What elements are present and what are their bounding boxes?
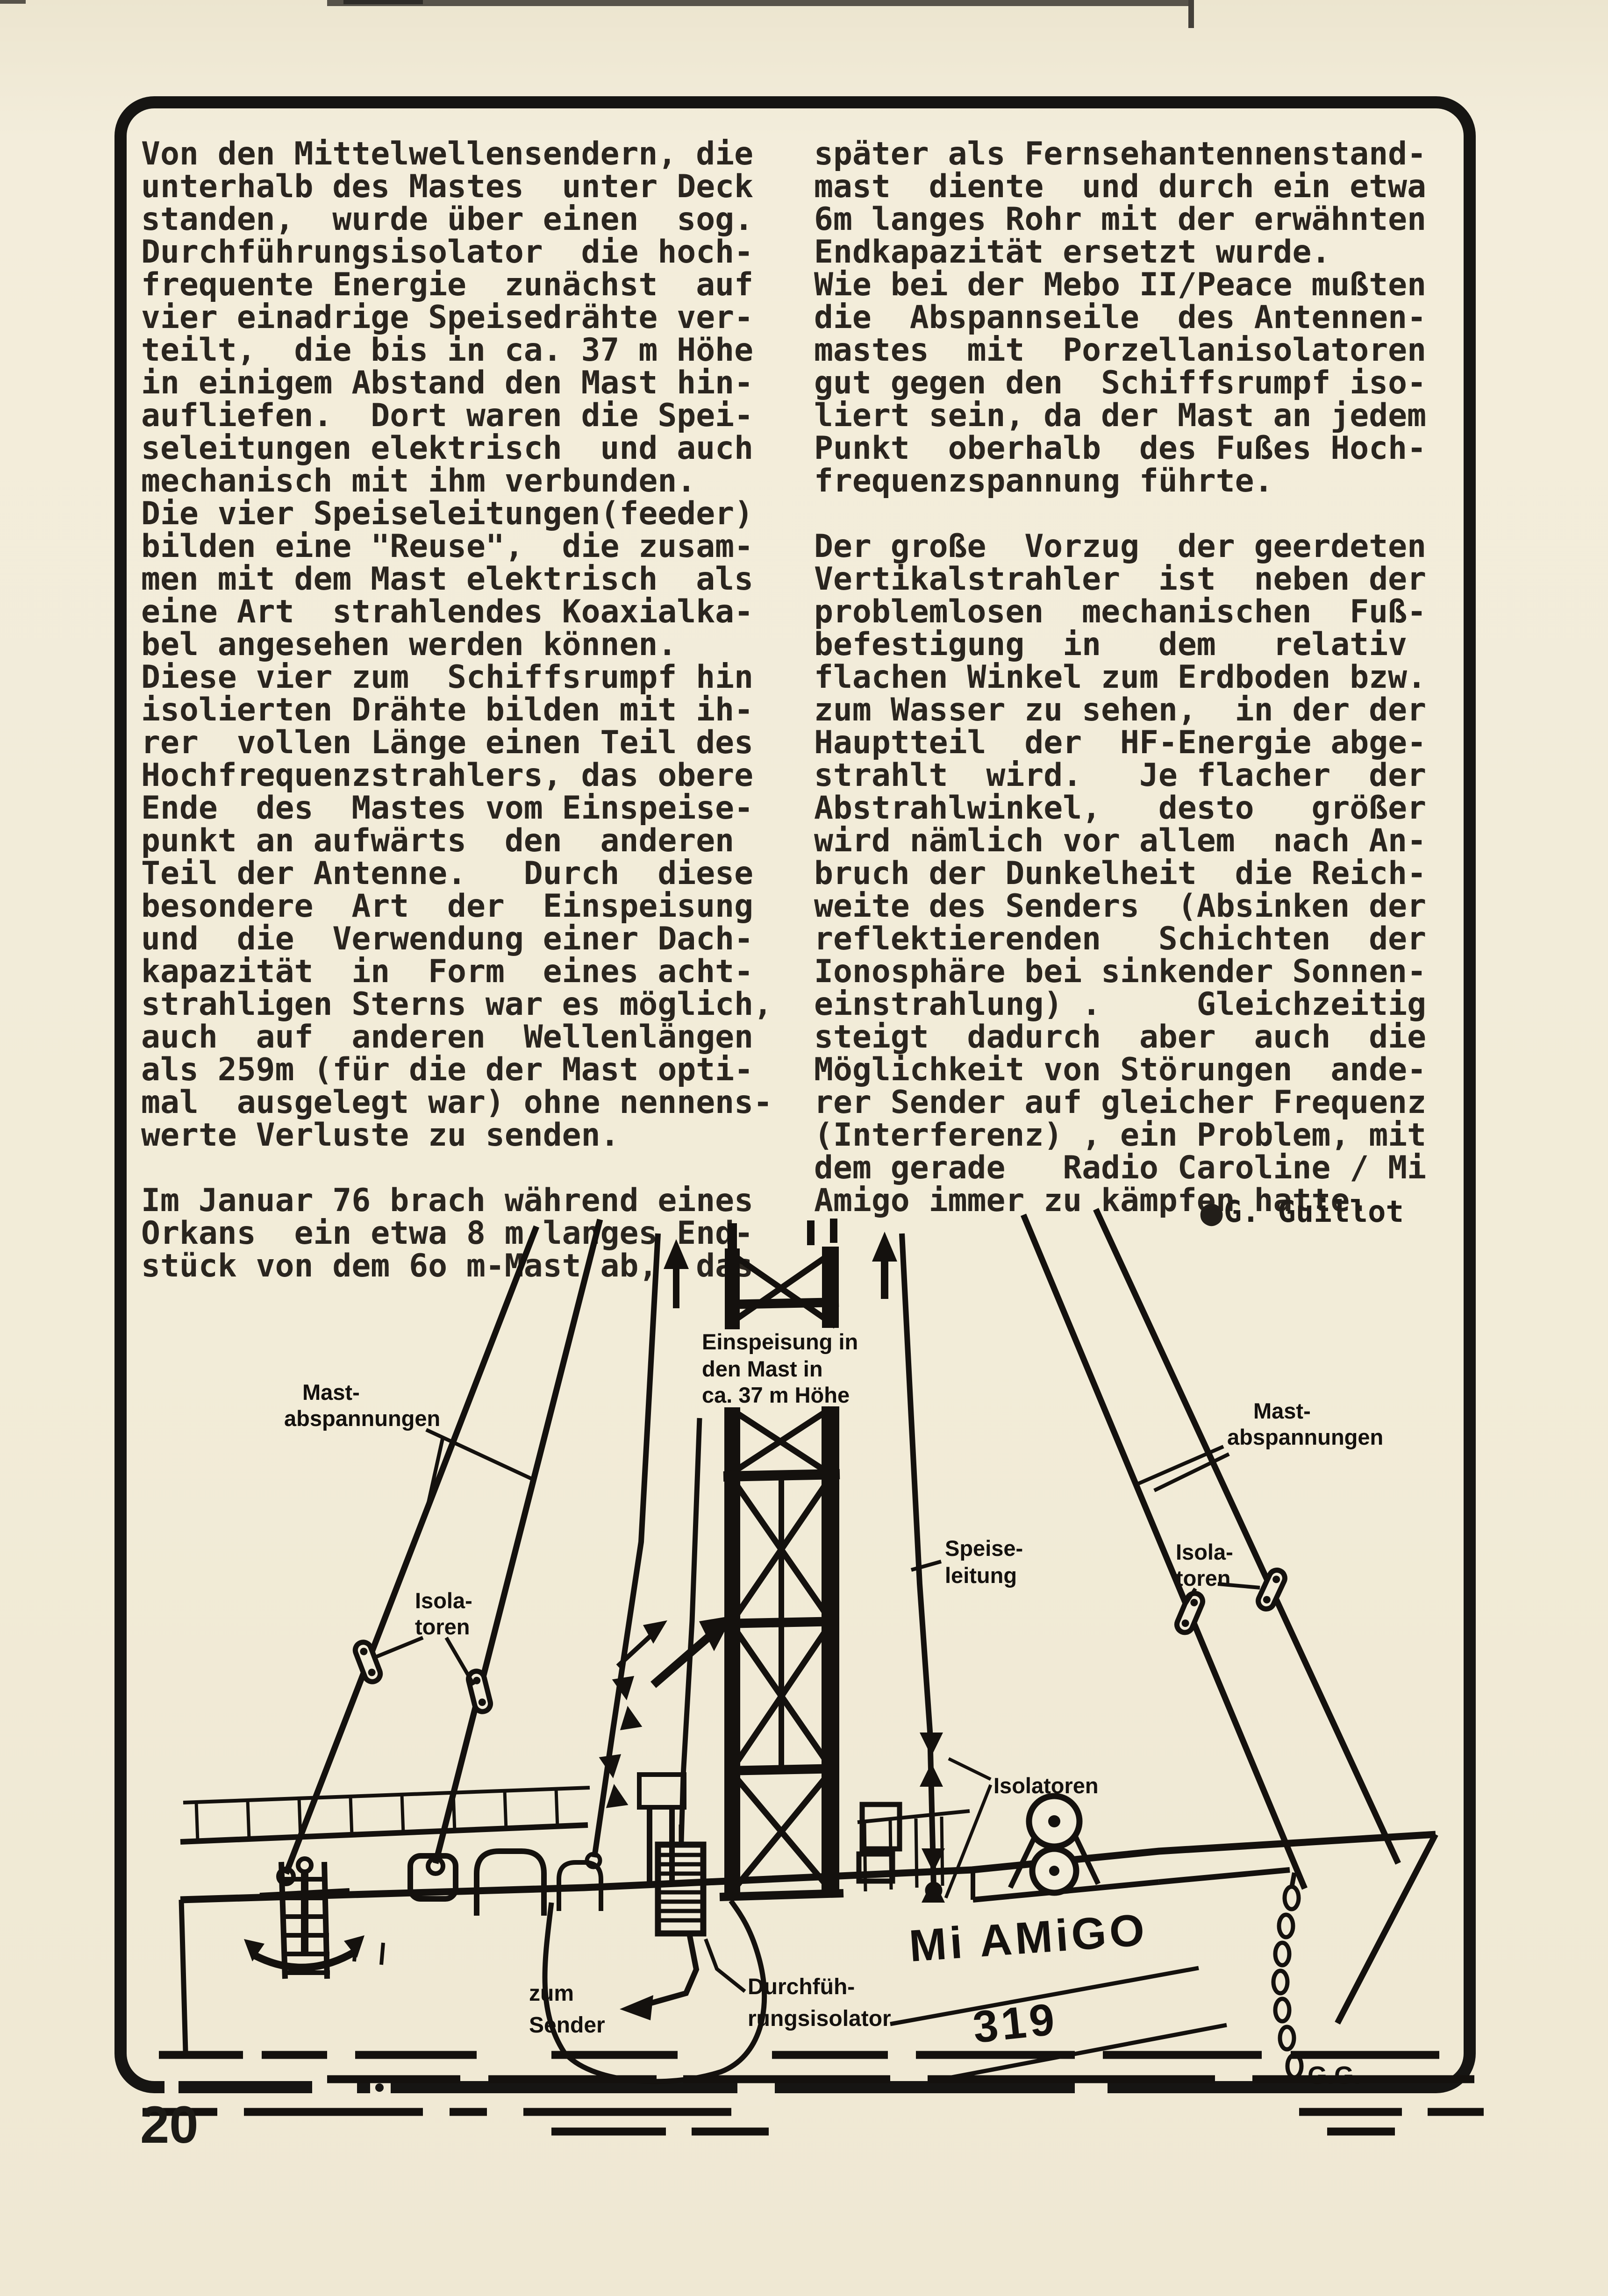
diagram-canvas: Einspeisung in den Mast in ca. 37 m Höhe…: [0, 0, 1608, 2296]
label-einspeisung: ca. 37 m Höhe: [702, 1383, 850, 1407]
label-einspeisung: den Mast in: [702, 1356, 823, 1381]
label-speiseleitung: leitung: [945, 1563, 1017, 1588]
ship-hull: [180, 1775, 1436, 2080]
label-mastabspannungen-right: Mast-: [1253, 1398, 1311, 1423]
antenna-mast: [720, 1219, 843, 1897]
ship-name-handwritten: Mi AMiGO: [908, 1905, 1149, 1971]
insulator-icon: [353, 1640, 382, 1684]
artist-initials: G.G.: [1308, 2061, 1361, 2089]
label-mastabspannungen-left: Mast-: [302, 1380, 360, 1405]
label-isolatoren-left: Isola-: [415, 1588, 472, 1613]
label-durchfuehrungsisolator: rungsisolator: [748, 2006, 891, 2031]
ship-number-handwritten: 319: [971, 1994, 1060, 2053]
anchor-icon: [244, 1859, 364, 1979]
label-isolatoren-left: toren: [415, 1614, 470, 1639]
page-number: 20: [140, 2099, 199, 2151]
insulator-icon: [1256, 1568, 1287, 1611]
label-zum-sender: zum: [529, 1981, 574, 2006]
label-isolatoren-right: Isola-: [1176, 1540, 1233, 1564]
label-zum-sender: Sender: [529, 2013, 605, 2038]
label-einspeisung: Einspeisung in: [702, 1329, 858, 1354]
label-isolatoren-right: toren: [1176, 1566, 1231, 1590]
scanned-magazine-page: Von den Mittelwellensendern, dieunterhal…: [0, 0, 1608, 2296]
label-isolatoren-center: Isolatoren: [993, 1773, 1099, 1798]
label-mastabspannungen-right: abspannungen: [1227, 1425, 1383, 1449]
anchor-chain: [1273, 1873, 1301, 2077]
label-speiseleitung: Speise-: [945, 1536, 1023, 1561]
label-mastabspannungen-left: abspannungen: [284, 1406, 440, 1431]
label-durchfuehrungsisolator: Durchfüh-: [748, 1975, 855, 1999]
to-transmitter-arrow: [620, 1933, 696, 2020]
